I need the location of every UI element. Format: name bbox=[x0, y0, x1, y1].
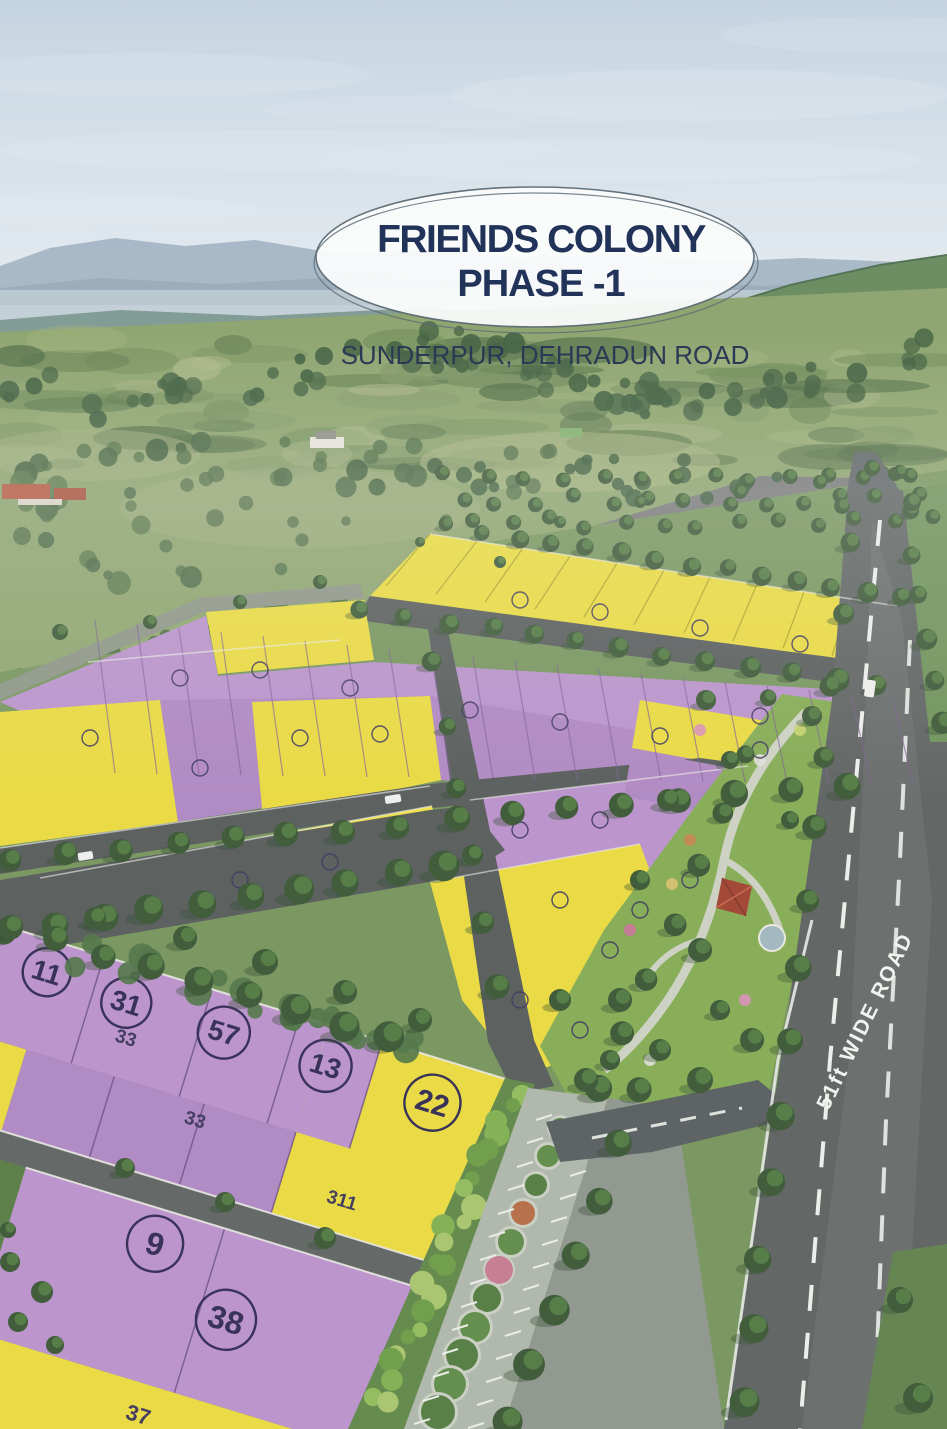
svg-text:PHASE -1: PHASE -1 bbox=[457, 263, 625, 305]
svg-text:FRIENDS COLONY: FRIENDS COLONY bbox=[377, 218, 706, 261]
svg-text:SUNDERPUR, DEHRADUN ROAD: SUNDERPUR, DEHRADUN ROAD bbox=[341, 340, 750, 370]
